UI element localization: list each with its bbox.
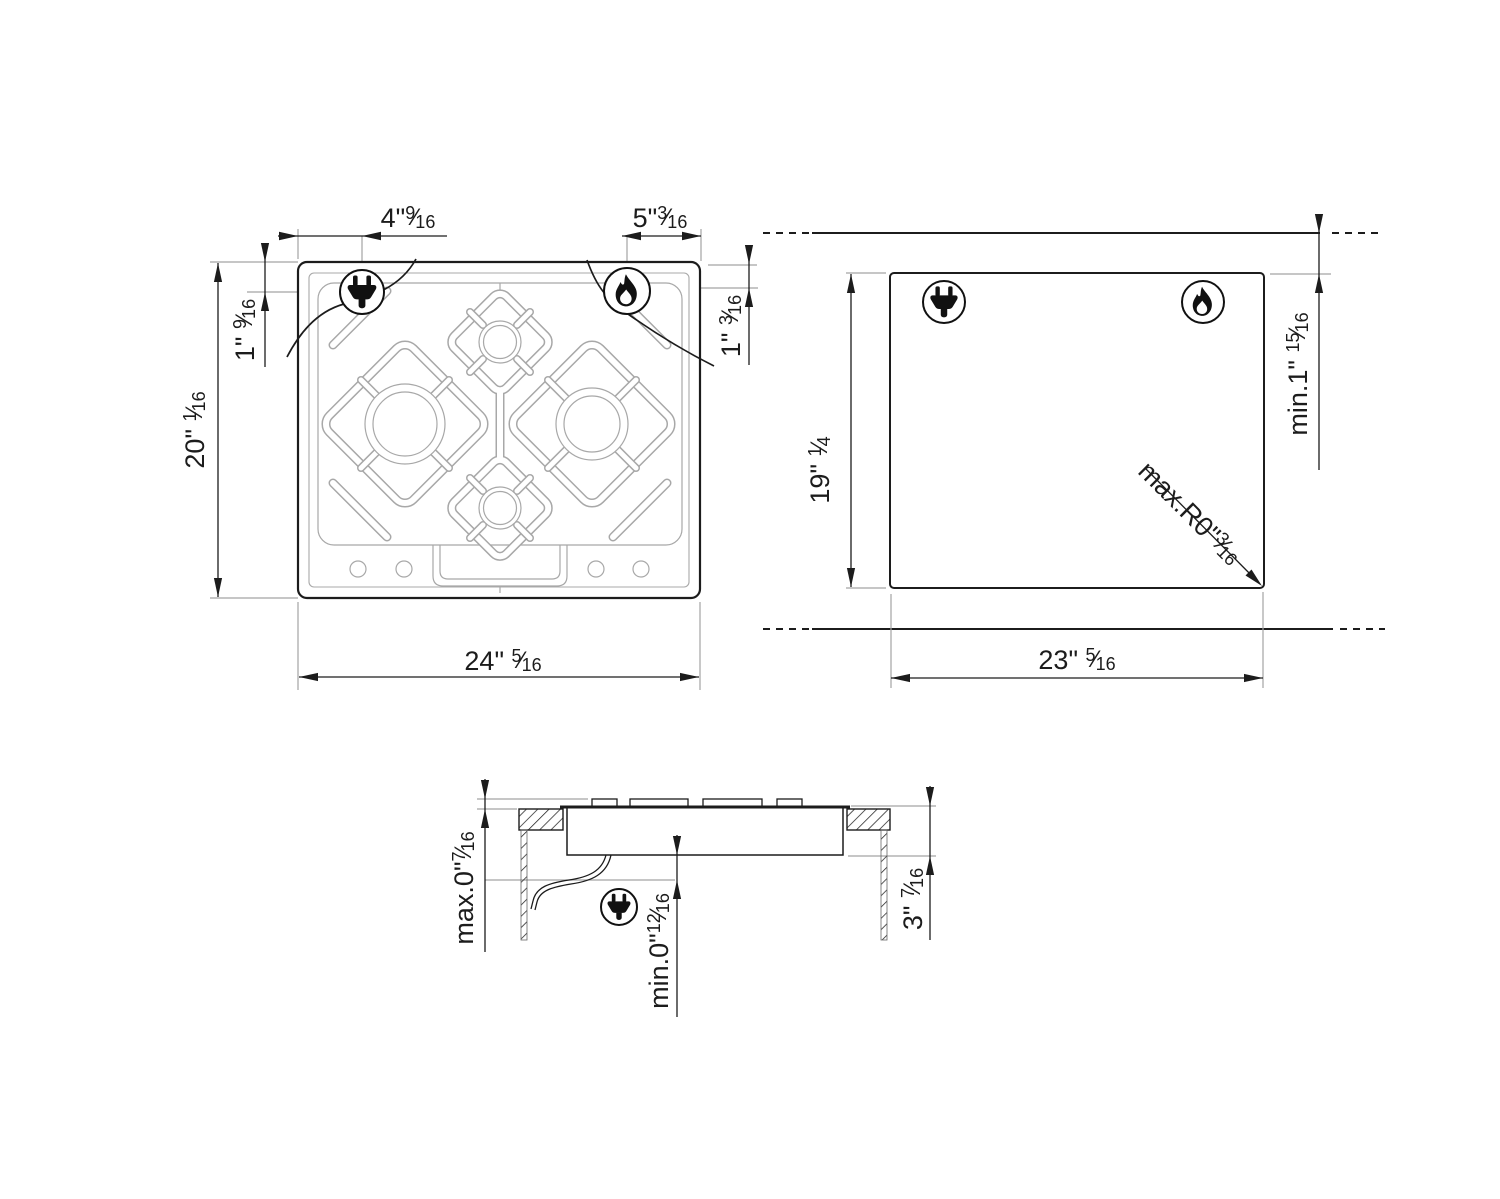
dim-hob-width: 24" 5⁄16 [464,647,541,675]
cabinet-panel-left [521,830,527,940]
power-cable [531,855,611,910]
installation-drawing-page: 4"9⁄16 5"3⁄16 1" 9⁄16 20" 1⁄16 1" 3⁄16 2… [0,0,1500,1199]
dim-gas-offset-y: 1" 3⁄16 [717,295,745,357]
dim-cutout-depth: 19" 1⁄4 [806,436,834,503]
power-plug-icon [340,270,384,314]
section-view [477,779,936,1017]
countertop-section-right [847,809,890,830]
dim-hob-depth: 20" 1⁄16 [181,391,209,468]
power-plug-icon [923,281,965,323]
dim-plug-offset-y: 1" 9⁄16 [231,299,259,361]
dim-gas-offset-x: 5"3⁄16 [633,204,688,232]
dim-plug-offset-x: 4"9⁄16 [381,204,436,232]
dim-cutout-width: 23" 5⁄16 [1038,646,1115,674]
dim-panel-thickness-max: max.0"7⁄16 [450,831,478,944]
hob-body-section [567,807,843,855]
dim-installation-depth: 3" 7⁄16 [899,868,927,930]
gas-flame-icon [604,268,650,314]
top-view [210,229,758,690]
cabinet-panel-right [881,830,887,940]
countertop-section-left [519,809,563,830]
dim-below-clearance-min: min.0"12⁄16 [645,893,673,1009]
gas-flame-icon [1182,281,1224,323]
dim-rear-clearance-min: min.1" 15⁄16 [1284,312,1312,435]
power-plug-icon [601,889,637,925]
technical-drawing [0,0,1500,1199]
cutout-view [763,214,1385,688]
